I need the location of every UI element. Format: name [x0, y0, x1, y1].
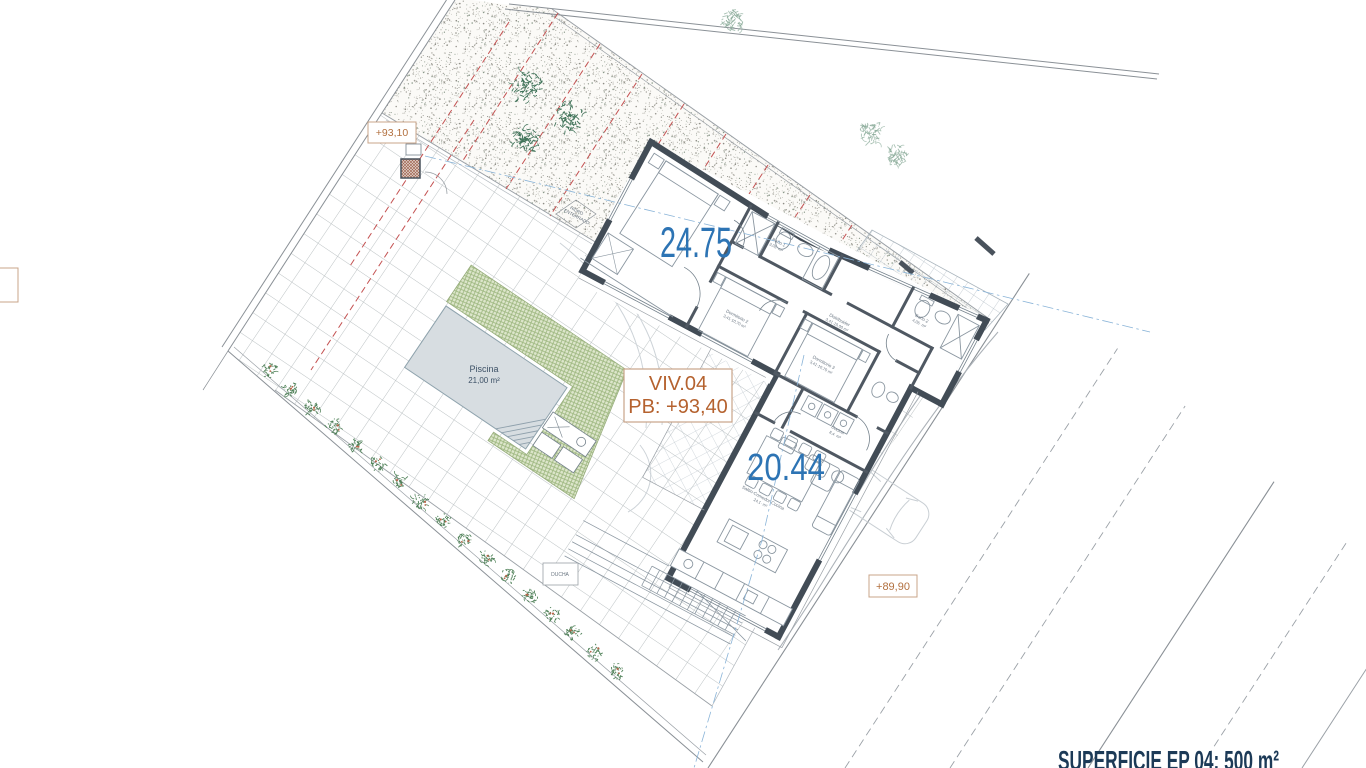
- svg-text:+93,10: +93,10: [376, 127, 409, 139]
- svg-text:SUPERFICIE EP 04: 500 m²: SUPERFICIE EP 04: 500 m²: [1058, 745, 1279, 768]
- svg-text:21,00 m²: 21,00 m²: [468, 376, 500, 385]
- svg-text:Piscina: Piscina: [469, 364, 498, 374]
- svg-text:24.75: 24.75: [660, 219, 732, 267]
- svg-text:+89,90: +89,90: [876, 581, 910, 593]
- svg-text:20.44: 20.44: [747, 447, 825, 489]
- svg-text:DUCHA: DUCHA: [551, 572, 569, 578]
- svg-text:VIV.04: VIV.04: [649, 373, 707, 395]
- svg-text:PB: +93,40: PB: +93,40: [628, 396, 728, 418]
